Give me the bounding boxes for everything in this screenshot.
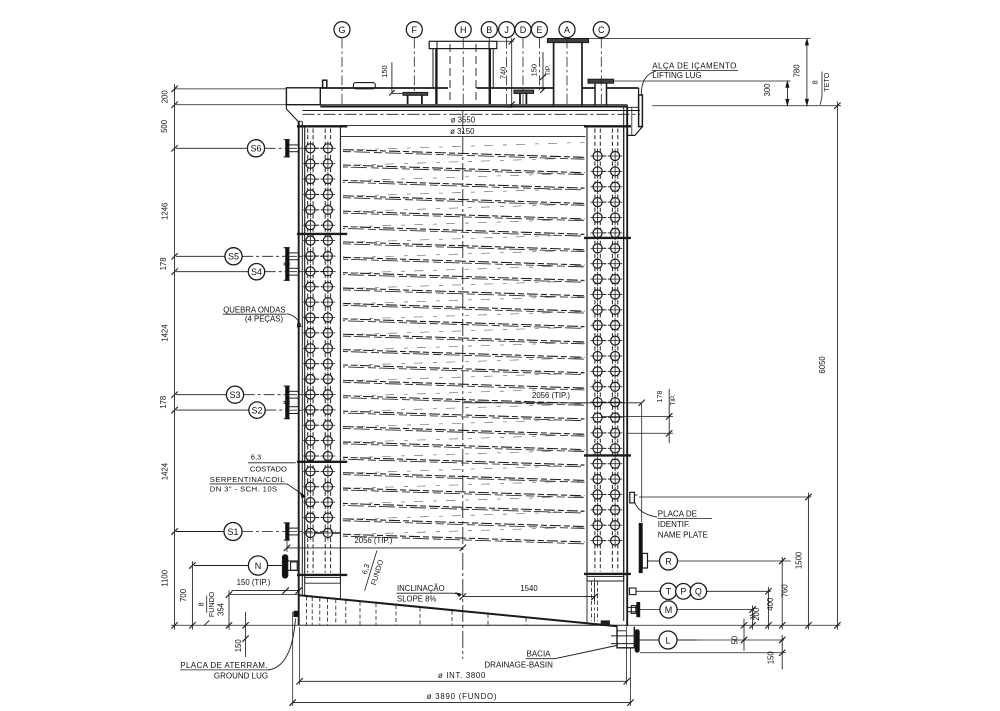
svg-text:1540: 1540 [520,584,538,593]
svg-text:178: 178 [159,396,168,409]
svg-text:PLACA DE: PLACA DE [658,509,697,518]
svg-text:150: 150 [380,65,389,77]
svg-text:2056 (TIP.): 2056 (TIP.) [354,536,392,545]
svg-text:E: E [536,25,542,35]
svg-text:FUNDO: FUNDO [207,591,216,617]
svg-text:G: G [338,25,345,35]
svg-text:400: 400 [766,597,775,611]
svg-text:P: P [680,587,686,597]
svg-text:COSTADO: COSTADO [250,464,287,473]
svg-text:2056 (TIP.): 2056 (TIP.) [532,391,570,400]
svg-text:S6: S6 [250,144,261,154]
svg-text:1100: 1100 [161,569,170,586]
svg-text:1246: 1246 [160,203,169,220]
svg-text:(4 PEÇAS): (4 PEÇAS) [245,314,284,323]
svg-text:S1: S1 [227,527,238,537]
svg-text:F: F [412,25,418,35]
svg-text:R: R [665,557,672,567]
svg-text:6050: 6050 [818,356,827,374]
svg-text:N: N [255,561,262,571]
svg-text:1500: 1500 [794,551,803,569]
svg-text:178: 178 [657,391,664,403]
svg-text:500: 500 [160,119,169,133]
svg-text:150: 150 [766,651,775,665]
svg-text:ø INT. 3800: ø INT. 3800 [438,671,486,680]
svg-text:700: 700 [179,588,188,602]
svg-text:Q: Q [695,587,702,597]
svg-text:ALÇA DE IÇAMENTO: ALÇA DE IÇAMENTO [652,61,737,70]
svg-text:ø 3150: ø 3150 [450,127,475,136]
svg-text:D: D [520,25,527,35]
svg-text:SLOPE 8%: SLOPE 8% [397,594,437,603]
svg-text:ø 3550: ø 3550 [451,116,476,125]
svg-text:150 (TIP.): 150 (TIP.) [237,578,271,587]
svg-text:H: H [460,25,467,35]
svg-text:INCLINAÇÃO: INCLINAÇÃO [397,584,445,593]
svg-text:TETO: TETO [822,72,831,91]
svg-text:S4: S4 [251,267,262,277]
svg-text:50: 50 [730,635,739,644]
svg-text:M: M [665,605,673,615]
svg-text:S2: S2 [251,406,262,416]
svg-text:SERPENTINA/COIL: SERPENTINA/COIL [210,475,285,484]
svg-text:A: A [564,25,570,35]
svg-text:354: 354 [216,602,225,616]
svg-text:6,3: 6,3 [251,453,262,462]
svg-text:S3: S3 [229,390,240,400]
svg-text:1424: 1424 [160,462,169,480]
svg-text:L: L [665,636,670,646]
svg-text:200: 200 [160,90,169,104]
svg-text:TIP.: TIP. [670,395,677,406]
svg-text:B: B [486,25,492,35]
svg-text:8: 8 [196,602,205,606]
svg-text:150: 150 [234,639,243,653]
svg-text:NAME PLATE: NAME PLATE [658,531,708,540]
svg-text:DRAINAGE-BASIN: DRAINAGE-BASIN [484,661,553,670]
svg-text:PLACA DE ATERRAM.: PLACA DE ATERRAM. [180,661,268,670]
svg-text:GROUND LUG: GROUND LUG [214,672,268,681]
svg-text:J: J [504,25,509,35]
svg-text:BACIA: BACIA [527,650,552,659]
svg-text:C: C [598,25,605,35]
svg-text:300: 300 [763,83,772,97]
svg-text:LIFTING LUG: LIFTING LUG [652,71,701,80]
svg-text:200: 200 [752,607,761,621]
svg-text:IDENTIF.: IDENTIF. [658,520,690,529]
svg-text:8: 8 [810,80,819,84]
svg-text:S5: S5 [228,252,239,262]
svg-text:780: 780 [793,64,802,78]
svg-text:1424: 1424 [160,324,169,342]
svg-text:ø 3890 (FUNDO): ø 3890 (FUNDO) [427,692,498,701]
svg-text:178: 178 [159,257,168,270]
svg-text:150: 150 [529,64,538,76]
svg-text:740: 740 [498,67,507,79]
svg-text:TIP.: TIP. [545,65,552,76]
svg-text:760: 760 [780,584,789,598]
svg-text:QUEBRA ONDAS: QUEBRA ONDAS [223,305,285,314]
svg-text:T: T [666,587,672,597]
svg-text:DN 3" - SCH. 10S: DN 3" - SCH. 10S [210,484,278,493]
